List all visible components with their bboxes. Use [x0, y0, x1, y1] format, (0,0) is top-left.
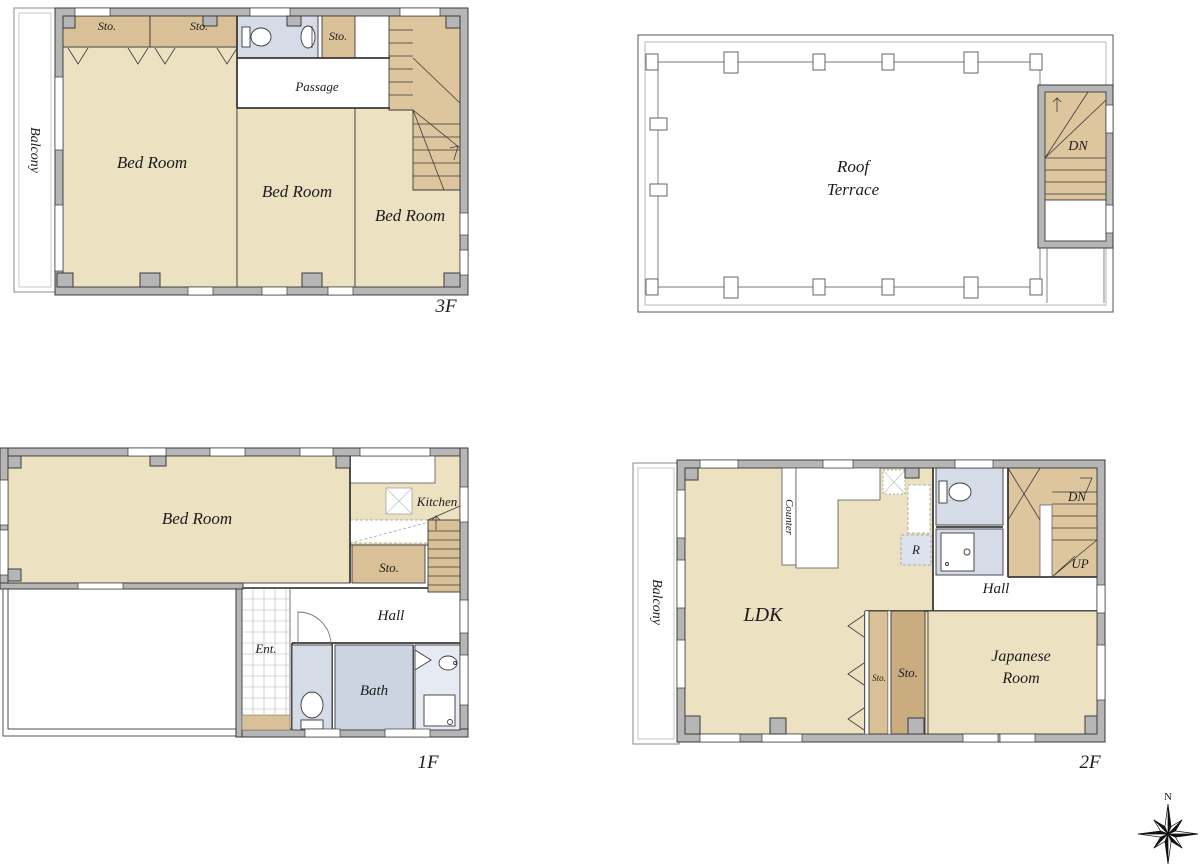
compass-north-label: N [1164, 791, 1172, 803]
japanese-room-label-line1: Japanese [991, 648, 1051, 665]
floor-1f-plan: Bed Room Kitchen Sto. Hall Ent. Bath 1F [0, 448, 468, 773]
storage-1-label: Sto. [98, 19, 116, 33]
passage-label: Passage [294, 79, 339, 94]
washbasin-icon-3f [301, 26, 315, 48]
balcony-3f-label: Balcony [27, 127, 42, 174]
japanese-room-label-line2: Room [1001, 670, 1039, 687]
counter-label: Counter [783, 499, 795, 536]
bedroom-1-label: Bed Room [117, 153, 187, 172]
bedroom-2-label: Bed Room [262, 182, 332, 201]
hall-1f-label: Hall [377, 608, 405, 624]
stairs-dn-label-2f: DN [1067, 489, 1087, 504]
washer-icon-2f [941, 533, 974, 571]
storage-1f-label: Sto. [379, 560, 399, 575]
floor-3f-plan: Balcony Sto. Sto. Sto. Passage Bed Room … [14, 8, 468, 317]
roof-terrace-label-line1: Roof [836, 157, 871, 176]
stairs-up-label-2f: UP [1071, 556, 1088, 571]
bedroom-3-label: Bed Room [375, 206, 445, 225]
kitchen-counter [350, 456, 435, 483]
roof-terrace-label-line2: Terrace [827, 180, 880, 199]
floorplan-canvas: Balcony Sto. Sto. Sto. Passage Bed Room … [0, 0, 1200, 866]
compass-rose: N [1138, 791, 1198, 864]
counter-dashed-2f [908, 485, 930, 533]
toilet-icon-2f [939, 481, 971, 503]
entrance-step [242, 715, 290, 730]
refrigerator-label: R [911, 542, 920, 557]
kitchen-label: Kitchen [416, 494, 457, 509]
sink-icon-2f [883, 470, 905, 494]
storage-large-2f-label: Sto. [898, 665, 918, 680]
storage-small-2f-label: Sto. [872, 673, 886, 683]
ldk-label: LDK [743, 604, 785, 626]
floor-2f-title: 2F [1079, 752, 1101, 773]
floor-3f-title: 3F [434, 296, 457, 317]
floor-1f-title: 1F [417, 752, 439, 773]
toilet-icon-3f [242, 27, 271, 47]
storage-3-label: Sto. [329, 29, 347, 43]
balcony-2f-label: Balcony [649, 579, 664, 626]
compass-star-light [1138, 804, 1198, 864]
storage-2-label: Sto. [190, 19, 208, 33]
roof-terrace-plan: Roof Terrace DN [638, 35, 1113, 312]
floorplan-drawing: Balcony Sto. Sto. Sto. Passage Bed Room … [0, 0, 1200, 866]
floor-2f-plan: Balcony LDK Counter R DN UP Hall Sto. St… [633, 460, 1105, 773]
roof-stairs-dn-label: DN [1067, 139, 1088, 154]
bedroom-1f-label: Bed Room [162, 509, 232, 528]
sink-icon-1f [386, 488, 412, 514]
washer-icon-1f [424, 695, 455, 726]
bath-label: Bath [360, 683, 388, 699]
hall-2f-label: Hall [982, 581, 1010, 597]
washbasin-icon-1f [439, 656, 457, 670]
entrance-label: Ent. [254, 641, 276, 656]
toilet-icon-1f [301, 692, 323, 729]
